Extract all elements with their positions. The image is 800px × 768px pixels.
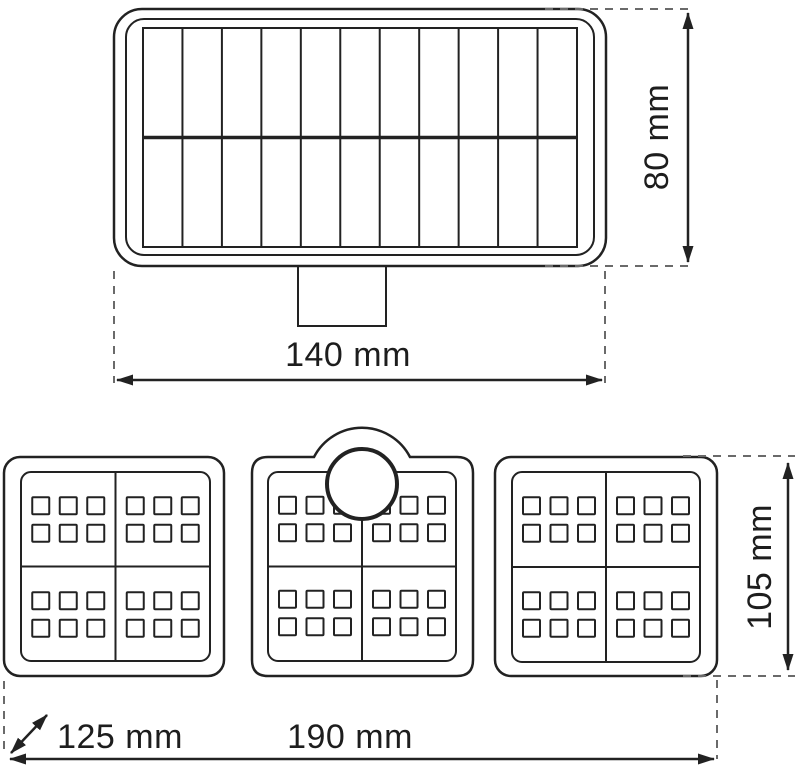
led-depth-label: 125 mm [57,718,183,756]
solar-panel-top-view [114,9,606,326]
led-panel-right [495,457,717,676]
solar-height-label: 80 mm [638,84,676,190]
depth-dimension-arrow [11,715,47,753]
dimension-drawing: 140 mm 80 mm 125 mm 190 mm 105 [0,0,800,768]
led-width-label: 190 mm [287,718,413,756]
dimension-diagram: 140 mm 80 mm 125 mm 190 mm 105 [0,0,800,768]
solar-width-label: 140 mm [285,336,411,374]
led-panel-center [252,428,473,676]
motion-sensor [327,449,397,519]
led-panel-left [4,457,224,676]
led-height-label: 105 mm [741,504,779,630]
